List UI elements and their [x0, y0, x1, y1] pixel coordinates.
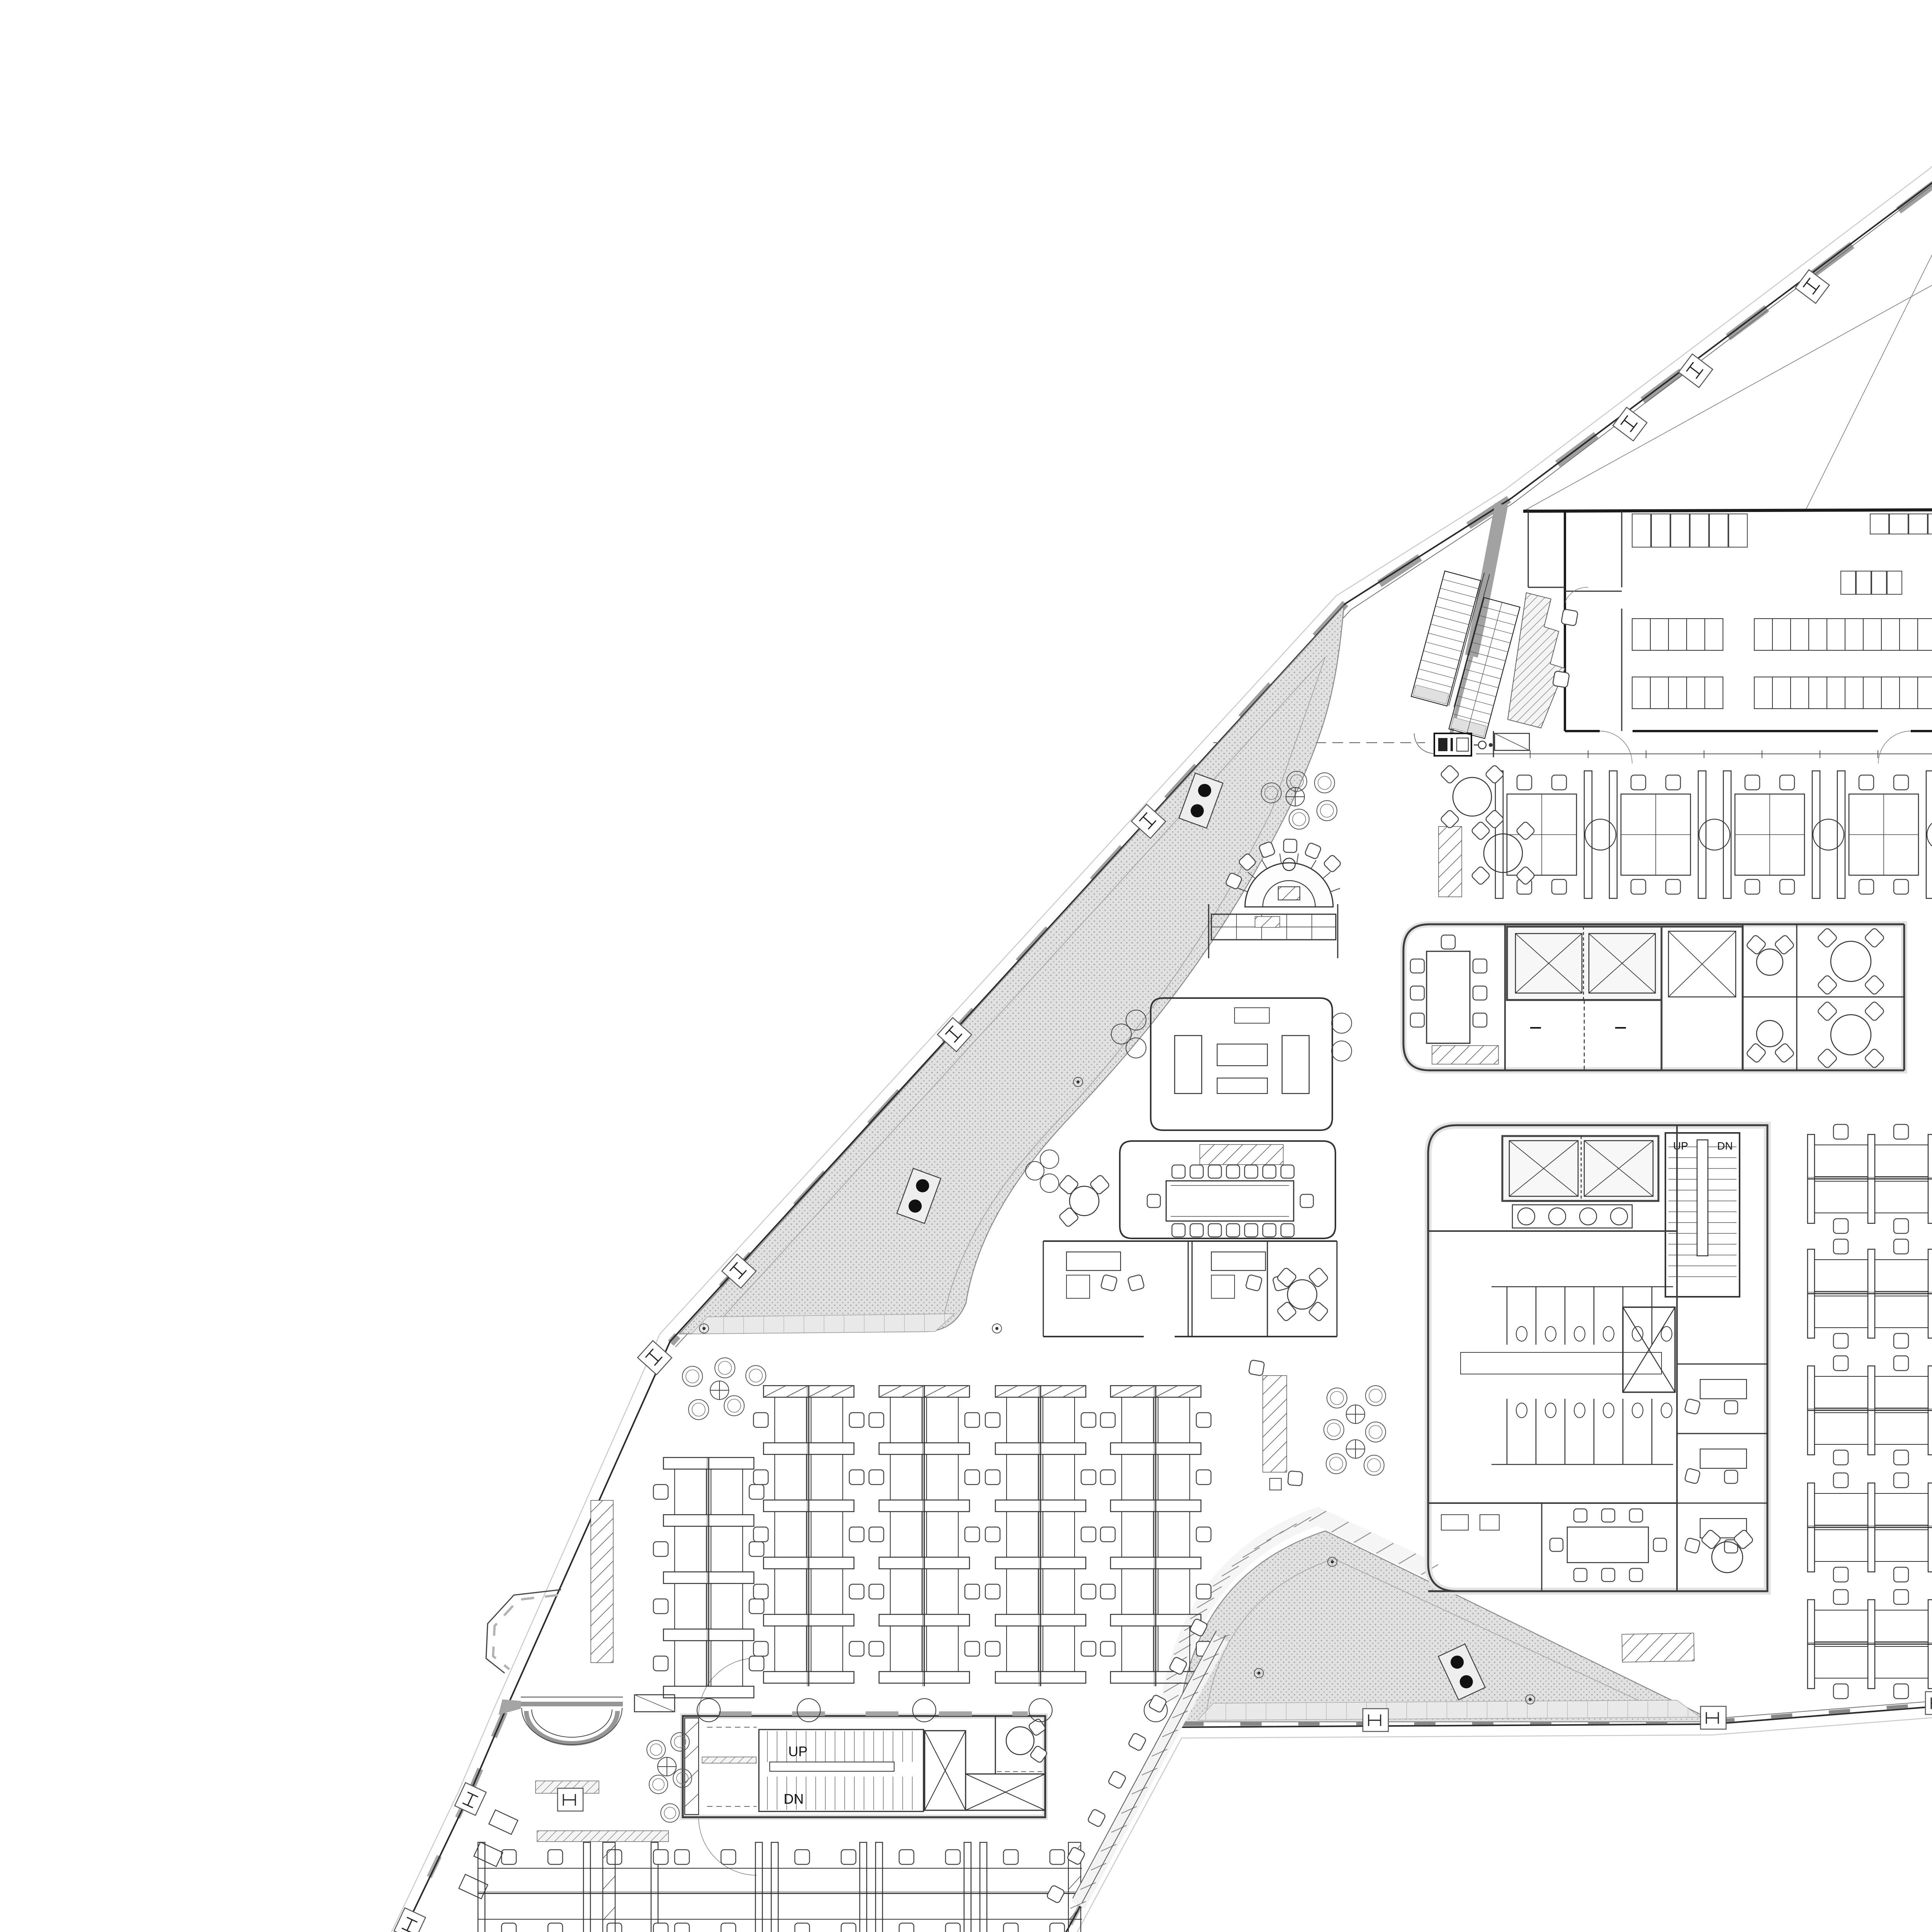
svg-text:UP: UP	[788, 1743, 808, 1759]
svg-text:DN: DN	[784, 1791, 804, 1807]
svg-text:DN: DN	[1717, 1140, 1733, 1152]
svg-text:UP: UP	[1673, 1140, 1688, 1152]
